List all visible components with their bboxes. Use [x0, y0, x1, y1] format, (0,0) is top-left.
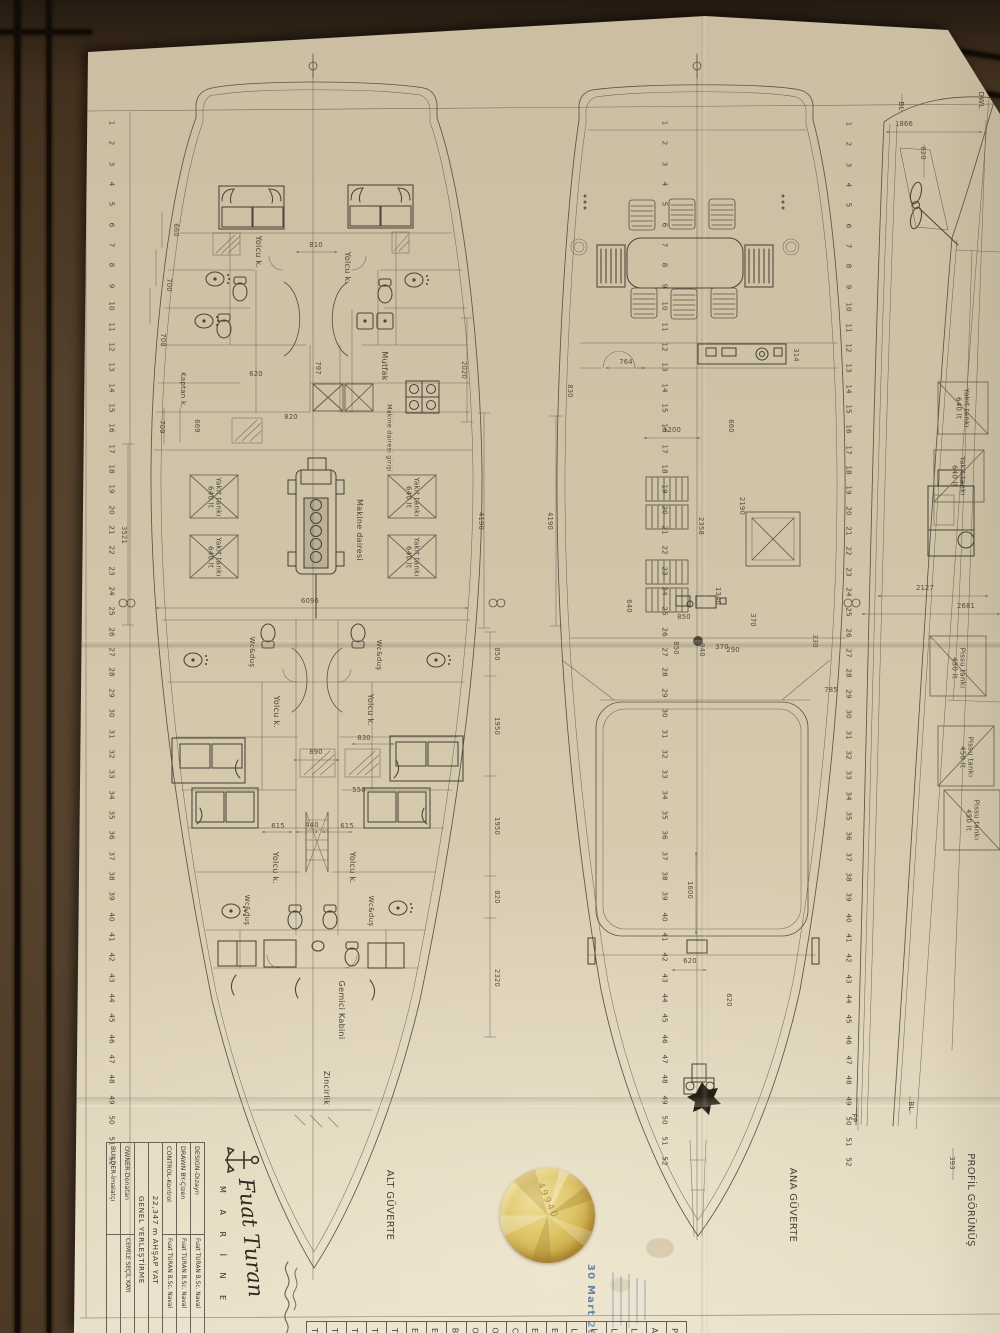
frame-number: 50 — [108, 1115, 117, 1124]
control-value: Fuat TURAN B.Sc. Naval — [167, 1235, 173, 1333]
frame-number: 35 — [845, 811, 854, 820]
frame-number: 40 — [108, 912, 117, 921]
drawing-title: GENEL YERLEŞTİRME — [134, 1143, 148, 1333]
design-value: Fuat TURAN B.Sc. Naval — [195, 1235, 201, 1333]
frame-number: 14 — [108, 383, 117, 392]
frame-number: 13 — [845, 364, 854, 373]
frame-number: 3 — [845, 162, 854, 167]
frame-number: 44 — [845, 994, 854, 1003]
frame-number: 27 — [108, 647, 117, 656]
frame-number: 9 — [661, 283, 670, 288]
table-cell-box: T — [326, 1321, 347, 1333]
frame-number: 31 — [661, 729, 670, 738]
drawn-value: Fuat TURAN B.Sc. Naval — [181, 1235, 187, 1333]
frame-number: 7 — [108, 243, 117, 248]
frame-number: 47 — [845, 1055, 854, 1064]
frame-number: 49 — [108, 1095, 117, 1104]
frame-number: 45 — [108, 1014, 117, 1023]
frame-number: 34 — [845, 791, 854, 800]
frame-number: 6 — [661, 222, 670, 227]
frame-number: 26 — [845, 628, 854, 637]
frame-number: 37 — [661, 851, 670, 860]
frame-number: 34 — [661, 790, 670, 799]
table-cell-box: E — [526, 1321, 547, 1333]
frame-number: 3 — [661, 161, 670, 166]
frame-number: 50 — [845, 1116, 854, 1125]
frame-number: 38 — [661, 871, 670, 880]
frame-number: 52 — [845, 1157, 854, 1166]
frame-number: 41 — [845, 933, 854, 942]
frame-number: 17 — [661, 444, 670, 453]
table-cell-box: P — [666, 1321, 687, 1333]
frame-number: 21 — [108, 525, 117, 534]
frame-number: 14 — [661, 383, 670, 392]
frame-number: 21 — [845, 526, 854, 535]
frame-number: 46 — [845, 1035, 854, 1044]
frame-number: 5 — [108, 202, 117, 207]
frame-number: 6 — [845, 223, 854, 228]
frame-number: 45 — [845, 1015, 854, 1024]
title-block: Fuat Turan M A R İ N E DESIGN-DizaynFuat… — [85, 1142, 263, 1333]
frame-number: 51 — [845, 1137, 854, 1146]
frame-number: 30 — [108, 708, 117, 717]
frame-number: 17 — [845, 445, 854, 454]
frame-number: 19 — [661, 485, 670, 494]
frame-number: 4 — [108, 182, 117, 187]
drawn-label: DRAWN BY-Çizen — [177, 1143, 190, 1235]
frame-number: 35 — [661, 810, 670, 819]
frame-number: 20 — [661, 505, 670, 514]
frame-number: 20 — [845, 506, 854, 515]
frame-number: 1 — [661, 121, 670, 126]
frame-number: 4 — [661, 182, 670, 187]
brand-marine: M A R İ N E — [218, 1186, 227, 1307]
frame-number: 44 — [661, 993, 670, 1002]
frame-number: 9 — [845, 284, 854, 289]
frame-number: 29 — [108, 688, 117, 697]
table-cell-box: O — [486, 1321, 507, 1333]
frame-number: 41 — [661, 932, 670, 941]
frame-number: 49 — [661, 1095, 670, 1104]
frame-number: 52 — [661, 1156, 670, 1165]
frame-number-rulers: 1234567891011121314151617181920212223242… — [0, 0, 1000, 1333]
table-cell-box: O — [466, 1321, 487, 1333]
frame-number: 4 — [845, 183, 854, 188]
frame-number: 47 — [661, 1054, 670, 1063]
frame-number: 39 — [108, 892, 117, 901]
frame-number: 13 — [661, 363, 670, 372]
marine-logo: Fuat Turan M A R İ N E — [205, 1142, 263, 1333]
frame-number: 36 — [661, 831, 670, 840]
frame-number: 12 — [845, 343, 854, 352]
frame-number: 23 — [845, 567, 854, 576]
frame-number: 8 — [108, 263, 117, 268]
table-cell-box: L — [586, 1321, 607, 1333]
frame-number: 7 — [661, 243, 670, 248]
frame-number: 5 — [845, 203, 854, 208]
frame-number: 36 — [108, 831, 117, 840]
table-cell-box: T — [386, 1321, 407, 1333]
frame-number: 1 — [108, 121, 117, 126]
frame-number: 19 — [845, 486, 854, 495]
frame-number: 38 — [845, 872, 854, 881]
frame-number: 18 — [661, 464, 670, 473]
frame-number: 25 — [845, 608, 854, 617]
frame-number: 17 — [108, 444, 117, 453]
seal-number: 49940 — [535, 1181, 560, 1220]
gold-seal-sticker: 49940 — [500, 1168, 595, 1263]
table-cell-box: T — [306, 1321, 327, 1333]
frame-number: 7 — [845, 244, 854, 249]
frame-number: 41 — [108, 932, 117, 941]
frame-number: 23 — [108, 566, 117, 575]
control-label: CONTROL-Kontrol — [163, 1143, 176, 1235]
frame-number: 29 — [845, 689, 854, 698]
frame-number: 37 — [845, 852, 854, 861]
frame-number: 49 — [845, 1096, 854, 1105]
frame-number: 51 — [661, 1136, 670, 1145]
frame-number: 3 — [108, 161, 117, 166]
owner-value: CEMİLE SEÇİL KAYI — [125, 1235, 131, 1333]
frame-number: 30 — [661, 708, 670, 717]
cutoff-table-strip: TTTTTEEBOOCEELLLLAP — [306, 1321, 686, 1333]
frame-number: 28 — [845, 669, 854, 678]
frame-number: 6 — [108, 222, 117, 227]
table-cell-box: L — [606, 1321, 627, 1333]
owner-label: OWNER-Donatan — [121, 1143, 134, 1235]
table-cell-box: B — [446, 1321, 467, 1333]
frame-number: 39 — [661, 892, 670, 901]
frame-number: 11 — [108, 322, 117, 331]
frame-number: 40 — [661, 912, 670, 921]
frame-number: 45 — [661, 1014, 670, 1023]
frame-number: 31 — [845, 730, 854, 739]
frame-number: 43 — [845, 974, 854, 983]
frame-number: 15 — [845, 404, 854, 413]
frame-number: 11 — [661, 322, 670, 331]
table-cell-box: A — [646, 1321, 667, 1333]
frame-number: 1 — [845, 122, 854, 127]
frame-number: 42 — [108, 953, 117, 962]
frame-number: 25 — [108, 607, 117, 616]
table-cell-box: E — [546, 1321, 567, 1333]
frame-number: 28 — [661, 668, 670, 677]
frame-number: 9 — [108, 283, 117, 288]
frame-number: 16 — [108, 424, 117, 433]
frame-number: 16 — [661, 424, 670, 433]
frame-number: 40 — [845, 913, 854, 922]
frame-number: 33 — [108, 770, 117, 779]
title-block-table: DESIGN-DizaynFuat TURAN B.Sc. Naval DRAW… — [106, 1142, 205, 1333]
frame-number: 42 — [845, 954, 854, 963]
frame-number: 27 — [661, 647, 670, 656]
table-cell-box: E — [426, 1321, 447, 1333]
frame-number: 8 — [845, 264, 854, 269]
table-cell-box: L — [566, 1321, 587, 1333]
frame-number: 50 — [661, 1115, 670, 1124]
frame-number: 10 — [661, 301, 670, 310]
frame-number: 12 — [108, 342, 117, 351]
frame-number: 19 — [108, 485, 117, 494]
table-cell-box: C — [506, 1321, 527, 1333]
frame-number: 2 — [661, 141, 670, 146]
frame-number: 10 — [845, 302, 854, 311]
frame-number: 23 — [661, 566, 670, 575]
frame-number: 12 — [661, 342, 670, 351]
frame-number: 33 — [661, 770, 670, 779]
frame-number: 32 — [661, 749, 670, 758]
frame-number: 42 — [661, 953, 670, 962]
table-cell-box: L — [626, 1321, 647, 1333]
frame-number: 32 — [845, 750, 854, 759]
boat-spec: 22,347 m AHŞAP YAT — [148, 1143, 162, 1333]
frame-number: 28 — [108, 668, 117, 677]
frame-number: 34 — [108, 790, 117, 799]
frame-number: 39 — [845, 893, 854, 902]
frame-number: 26 — [661, 627, 670, 636]
table-cell-box: T — [346, 1321, 367, 1333]
frame-number: 43 — [661, 973, 670, 982]
frame-number: 24 — [845, 587, 854, 596]
frame-number: 48 — [108, 1075, 117, 1084]
design-label: DESIGN-Dizayn — [191, 1143, 204, 1235]
frame-number: 31 — [108, 729, 117, 738]
frame-number: 32 — [108, 749, 117, 758]
frame-number: 37 — [108, 851, 117, 860]
frame-number: 36 — [845, 832, 854, 841]
frame-number: 22 — [661, 546, 670, 555]
frame-number: 5 — [661, 202, 670, 207]
frame-number: 26 — [108, 627, 117, 636]
frame-number: 2 — [108, 141, 117, 146]
frame-number: 24 — [661, 586, 670, 595]
frame-number: 43 — [108, 973, 117, 982]
table-cell-box: T — [366, 1321, 387, 1333]
frame-number: 13 — [108, 363, 117, 372]
frame-number: 48 — [661, 1075, 670, 1084]
frame-number: 25 — [661, 607, 670, 616]
frame-number: 35 — [108, 810, 117, 819]
photo-of-blueprint: Yolcu k.Yolcu k.MutfakMakine dairesi gir… — [0, 0, 1000, 1333]
frame-number: 44 — [108, 993, 117, 1002]
frame-number: 46 — [108, 1034, 117, 1043]
frame-number: 20 — [108, 505, 117, 514]
frame-number: 10 — [108, 301, 117, 310]
frame-number: 15 — [661, 403, 670, 412]
frame-number: 15 — [108, 403, 117, 412]
builder-label: BUILDER-İmalatçı — [107, 1143, 120, 1235]
frame-number: 18 — [108, 464, 117, 473]
frame-number: 38 — [108, 871, 117, 880]
frame-number: 30 — [845, 709, 854, 718]
frame-number: 16 — [845, 425, 854, 434]
anchor-icon — [217, 1146, 261, 1174]
frame-number: 24 — [108, 586, 117, 595]
frame-number: 33 — [845, 771, 854, 780]
frame-number: 21 — [661, 525, 670, 534]
frame-number: 47 — [108, 1054, 117, 1063]
frame-number: 22 — [845, 547, 854, 556]
frame-number: 14 — [845, 384, 854, 393]
frame-number: 8 — [661, 263, 670, 268]
frame-number: 11 — [845, 323, 854, 332]
frame-number: 18 — [845, 465, 854, 474]
frame-number: 48 — [845, 1076, 854, 1085]
frame-number: 27 — [845, 648, 854, 657]
frame-number: 46 — [661, 1034, 670, 1043]
table-cell-box: E — [406, 1321, 427, 1333]
frame-number: 22 — [108, 546, 117, 555]
frame-number: 29 — [661, 688, 670, 697]
blueprint-paper: Yolcu k.Yolcu k.MutfakMakine dairesi gir… — [0, 0, 1000, 1333]
frame-number: 2 — [845, 142, 854, 147]
